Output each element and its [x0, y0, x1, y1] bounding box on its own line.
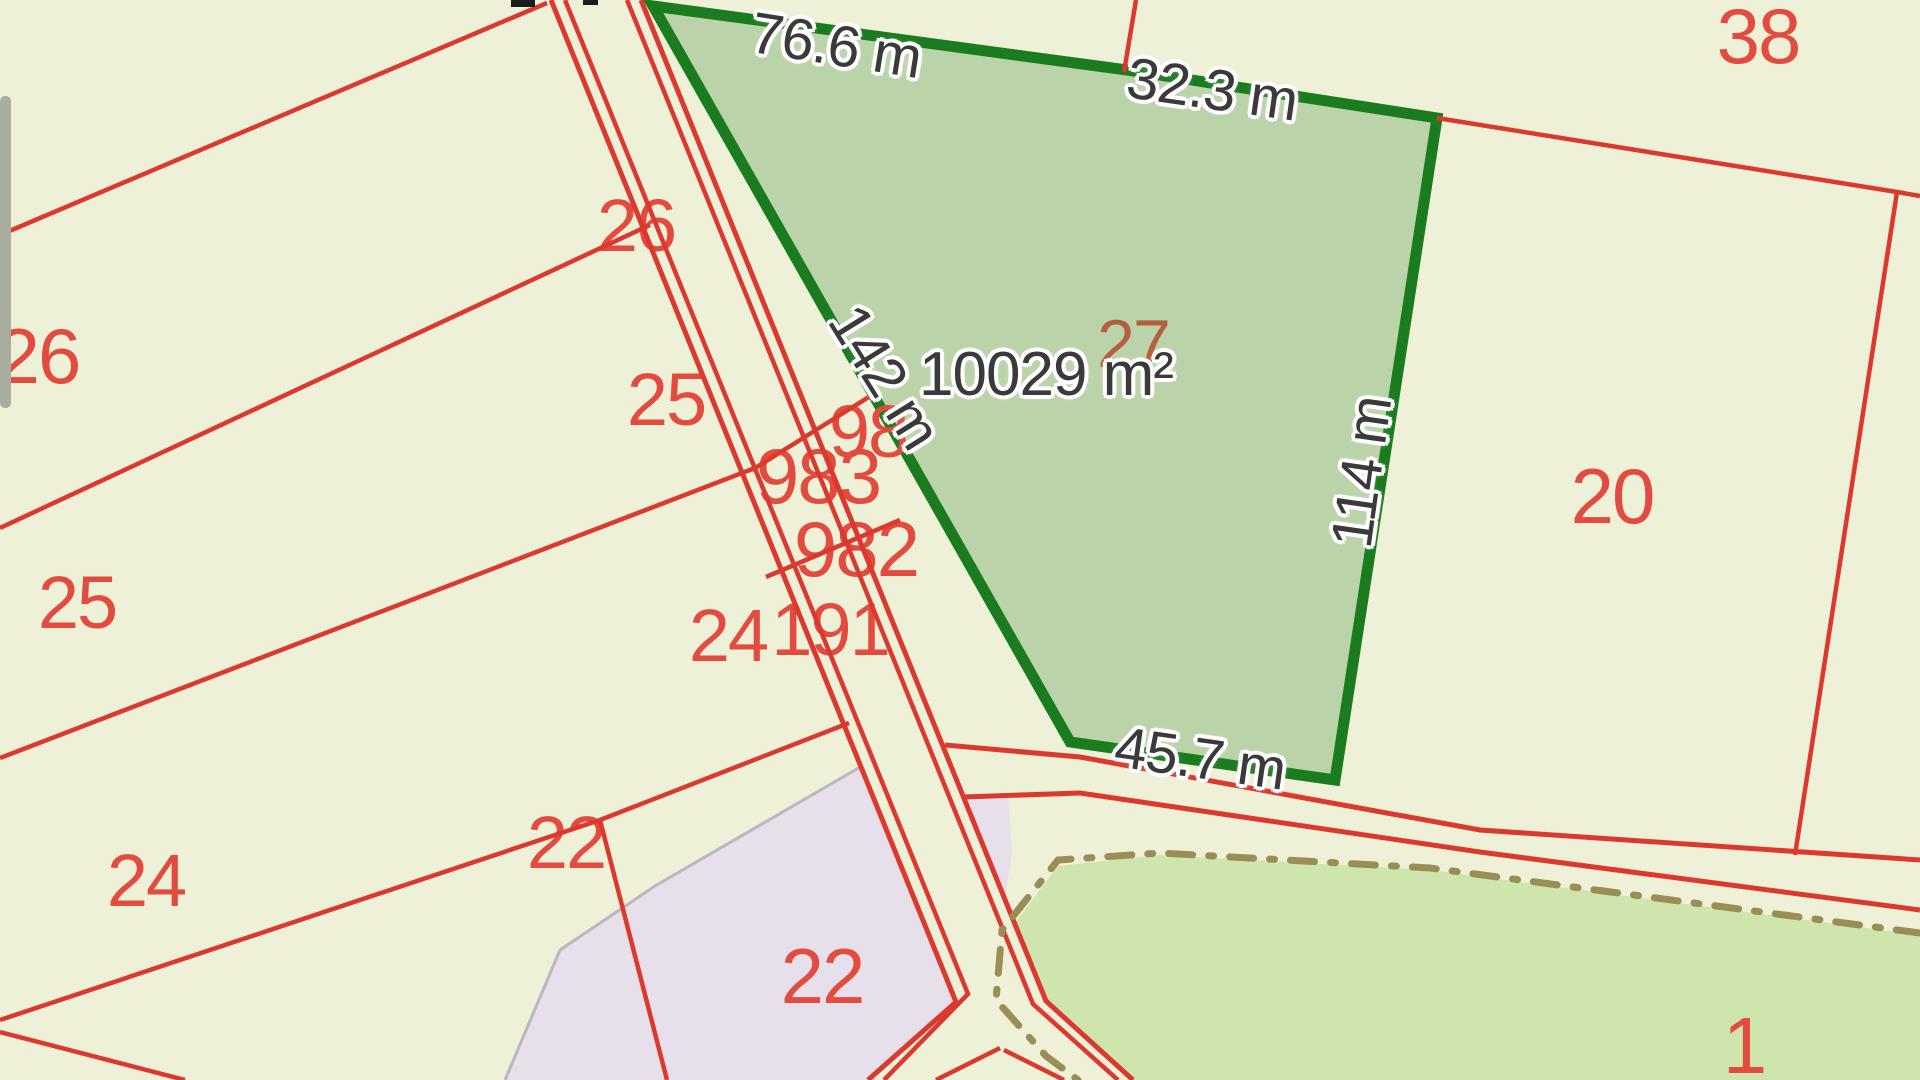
- parcel-label-38[interactable]: 38: [1717, 0, 1800, 75]
- parcel-label-25-road[interactable]: 25: [627, 363, 705, 437]
- parcel-label-22-mid[interactable]: 22: [527, 806, 605, 880]
- parcel-number-layer: 38 26 26 25 25 983 98 982 24 191 24 22 2…: [0, 0, 1920, 1080]
- parcel-label-24-road[interactable]: 24: [689, 599, 767, 673]
- parcel-label-1[interactable]: 1: [1723, 1006, 1766, 1080]
- parcel-label-982[interactable]: 982: [794, 510, 918, 588]
- parcel-label-22-pink[interactable]: 22: [781, 937, 864, 1015]
- parcel-label-26-road[interactable]: 26: [597, 189, 675, 263]
- map-canvas[interactable]: 38 26 26 25 25 983 98 982 24 191 24 22 2…: [0, 0, 1920, 1080]
- selected-parcel-number[interactable]: 27: [1097, 310, 1169, 378]
- parcel-label-26-left[interactable]: 26: [0, 317, 79, 395]
- parcel-label-24-left[interactable]: 24: [107, 844, 185, 918]
- parcel-label-98-fragment[interactable]: 98: [829, 395, 907, 469]
- parcel-label-20[interactable]: 20: [1571, 457, 1654, 535]
- parcel-label-25-left[interactable]: 25: [38, 566, 116, 640]
- parcel-label-191[interactable]: 191: [771, 593, 888, 667]
